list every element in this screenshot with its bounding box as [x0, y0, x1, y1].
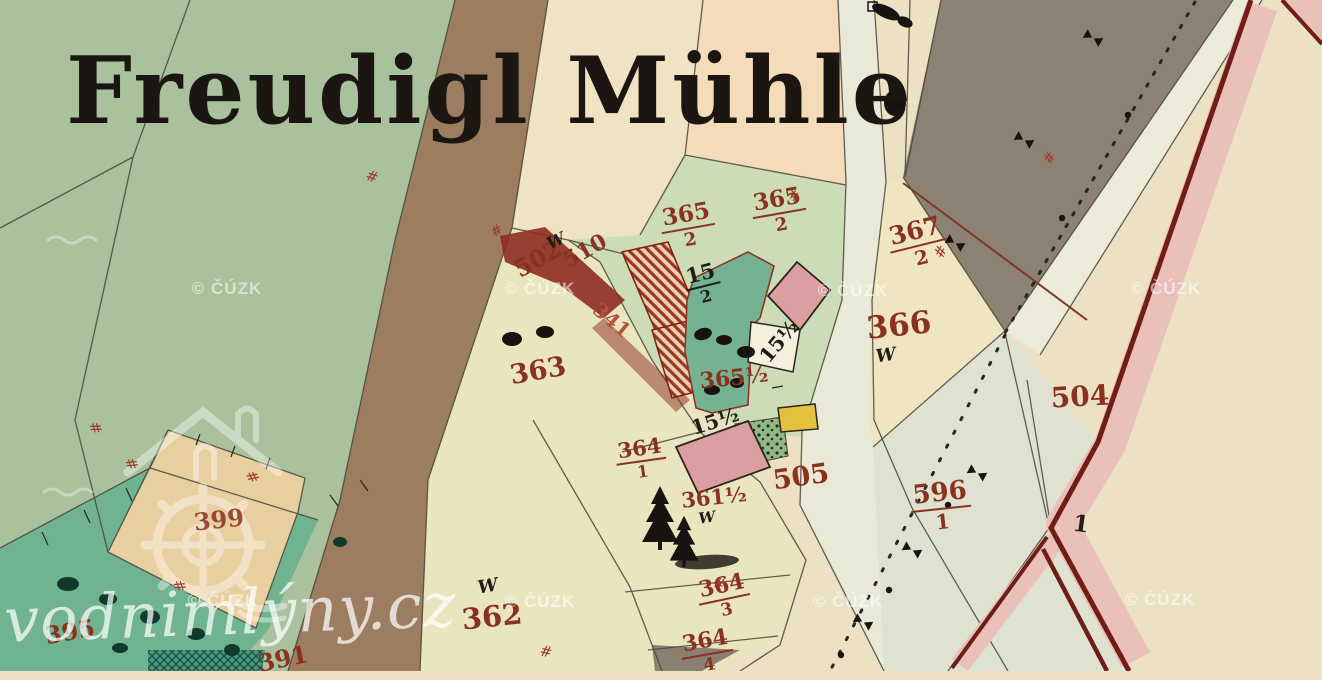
white-farm-building: [748, 322, 800, 372]
cadastral-map-canvas: [0, 0, 1322, 671]
yellow-wooden-structure: [778, 404, 818, 432]
map-viewport[interactable]: 3652365236723663633623641361½36433644505…: [0, 0, 1322, 671]
